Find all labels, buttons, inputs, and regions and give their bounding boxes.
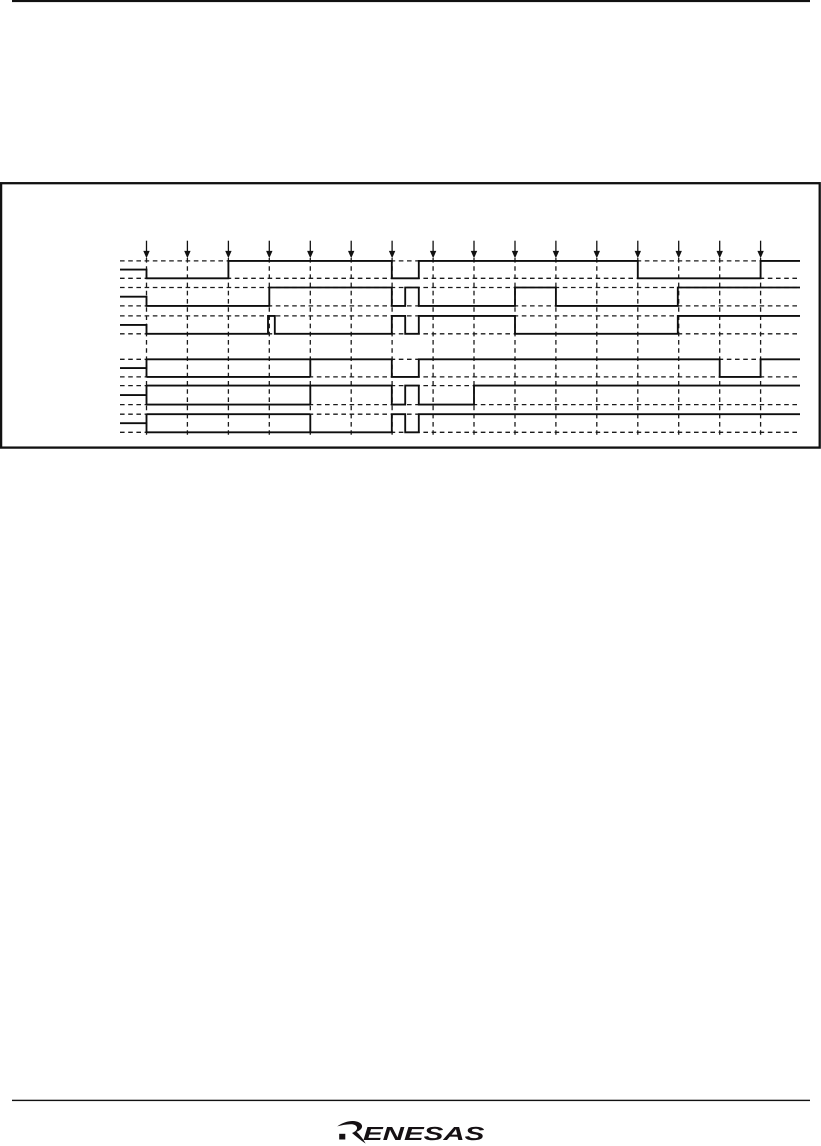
svg-text:ENESAS: ENESAS [363, 1124, 485, 1145]
